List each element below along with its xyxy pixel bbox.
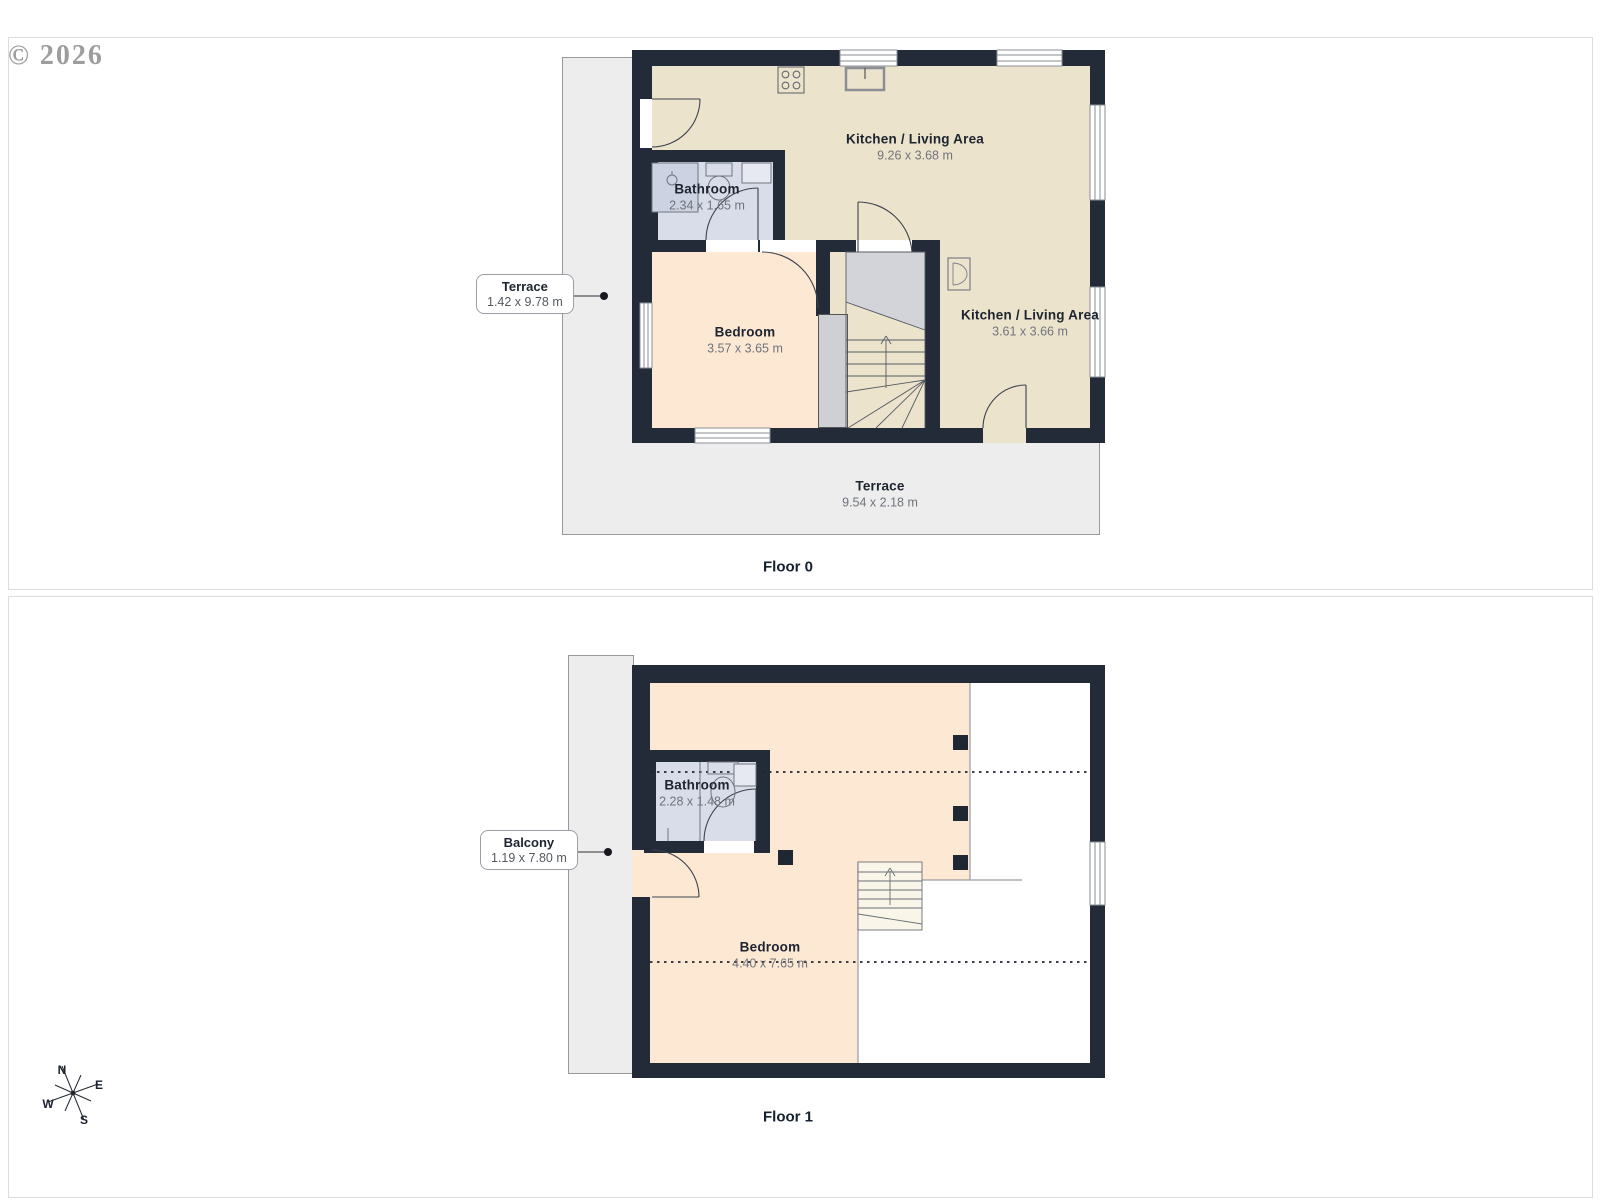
floor1-column xyxy=(778,850,793,865)
room-name: Bedroom xyxy=(707,325,783,340)
floor0-stair-door-gap xyxy=(856,240,912,252)
floor0-terrace-door-gap xyxy=(983,428,1026,443)
room-name: Terrace xyxy=(842,479,918,494)
room-dims: 4.40 x 7.65 m xyxy=(732,957,808,971)
room-label-bathroom-f0: Bathroom 2.34 x 1.65 m xyxy=(669,182,745,213)
room-name: Kitchen / Living Area xyxy=(846,132,984,147)
room-name: Bathroom xyxy=(659,778,735,793)
floor1-column xyxy=(953,735,968,750)
room-name: Bathroom xyxy=(669,182,745,197)
room-dims: 2.34 x 1.65 m xyxy=(669,199,745,213)
floor1-balcony-area xyxy=(568,655,634,1074)
room-label-kitchen-living-side: Kitchen / Living Area 3.61 x 3.66 m xyxy=(961,308,1099,339)
floorplan-canvas: © 2026 xyxy=(0,0,1600,1200)
callout-dims: 1.42 x 9.78 m xyxy=(487,295,563,309)
floor0-bathroom-door-gap xyxy=(706,240,758,252)
floor0-bedroom-door-gap xyxy=(760,240,816,252)
balcony-callout: Balcony 1.19 x 7.80 m xyxy=(480,830,578,870)
room-label-bedroom-f0: Bedroom 3.57 x 3.65 m xyxy=(707,325,783,356)
floor1-column xyxy=(953,855,968,870)
room-label-kitchen-living-main: Kitchen / Living Area 9.26 x 3.68 m xyxy=(846,132,984,163)
floor1-column xyxy=(953,806,968,821)
callout-dims: 1.19 x 7.80 m xyxy=(491,851,567,865)
floor0-closet xyxy=(818,314,848,428)
room-label-terrace-bottom: Terrace 9.54 x 2.18 m xyxy=(842,479,918,510)
room-name: Bedroom xyxy=(732,940,808,955)
callout-name: Terrace xyxy=(487,279,563,294)
room-label-bathroom-f1: Bathroom 2.28 x 1.48 m xyxy=(659,778,735,809)
room-dims: 9.54 x 2.18 m xyxy=(842,496,918,510)
copyright-watermark: © 2026 xyxy=(8,40,104,72)
room-dims: 3.61 x 3.66 m xyxy=(961,325,1099,339)
floor1-balcony-door-gap xyxy=(632,850,650,897)
floor1-bathroom-door-gap xyxy=(704,841,754,853)
room-dims: 2.28 x 1.48 m xyxy=(659,795,735,809)
room-dims: 9.26 x 3.68 m xyxy=(846,149,984,163)
room-dims: 3.57 x 3.65 m xyxy=(707,342,783,356)
terrace-callout: Terrace 1.42 x 9.78 m xyxy=(476,274,574,314)
floor1-bedroom-floor-lower xyxy=(650,880,858,1063)
callout-name: Balcony xyxy=(491,835,567,850)
room-label-bedroom-f1: Bedroom 4.40 x 7.65 m xyxy=(732,940,808,971)
floor0-entry-door-gap xyxy=(640,99,652,148)
floor1-label: Floor 1 xyxy=(763,1109,813,1126)
floor0-stair-wall xyxy=(925,240,940,428)
floor0-label: Floor 0 xyxy=(763,559,813,576)
room-name: Kitchen / Living Area xyxy=(961,308,1099,323)
floor0-bedroom-wall-stub xyxy=(816,252,830,316)
